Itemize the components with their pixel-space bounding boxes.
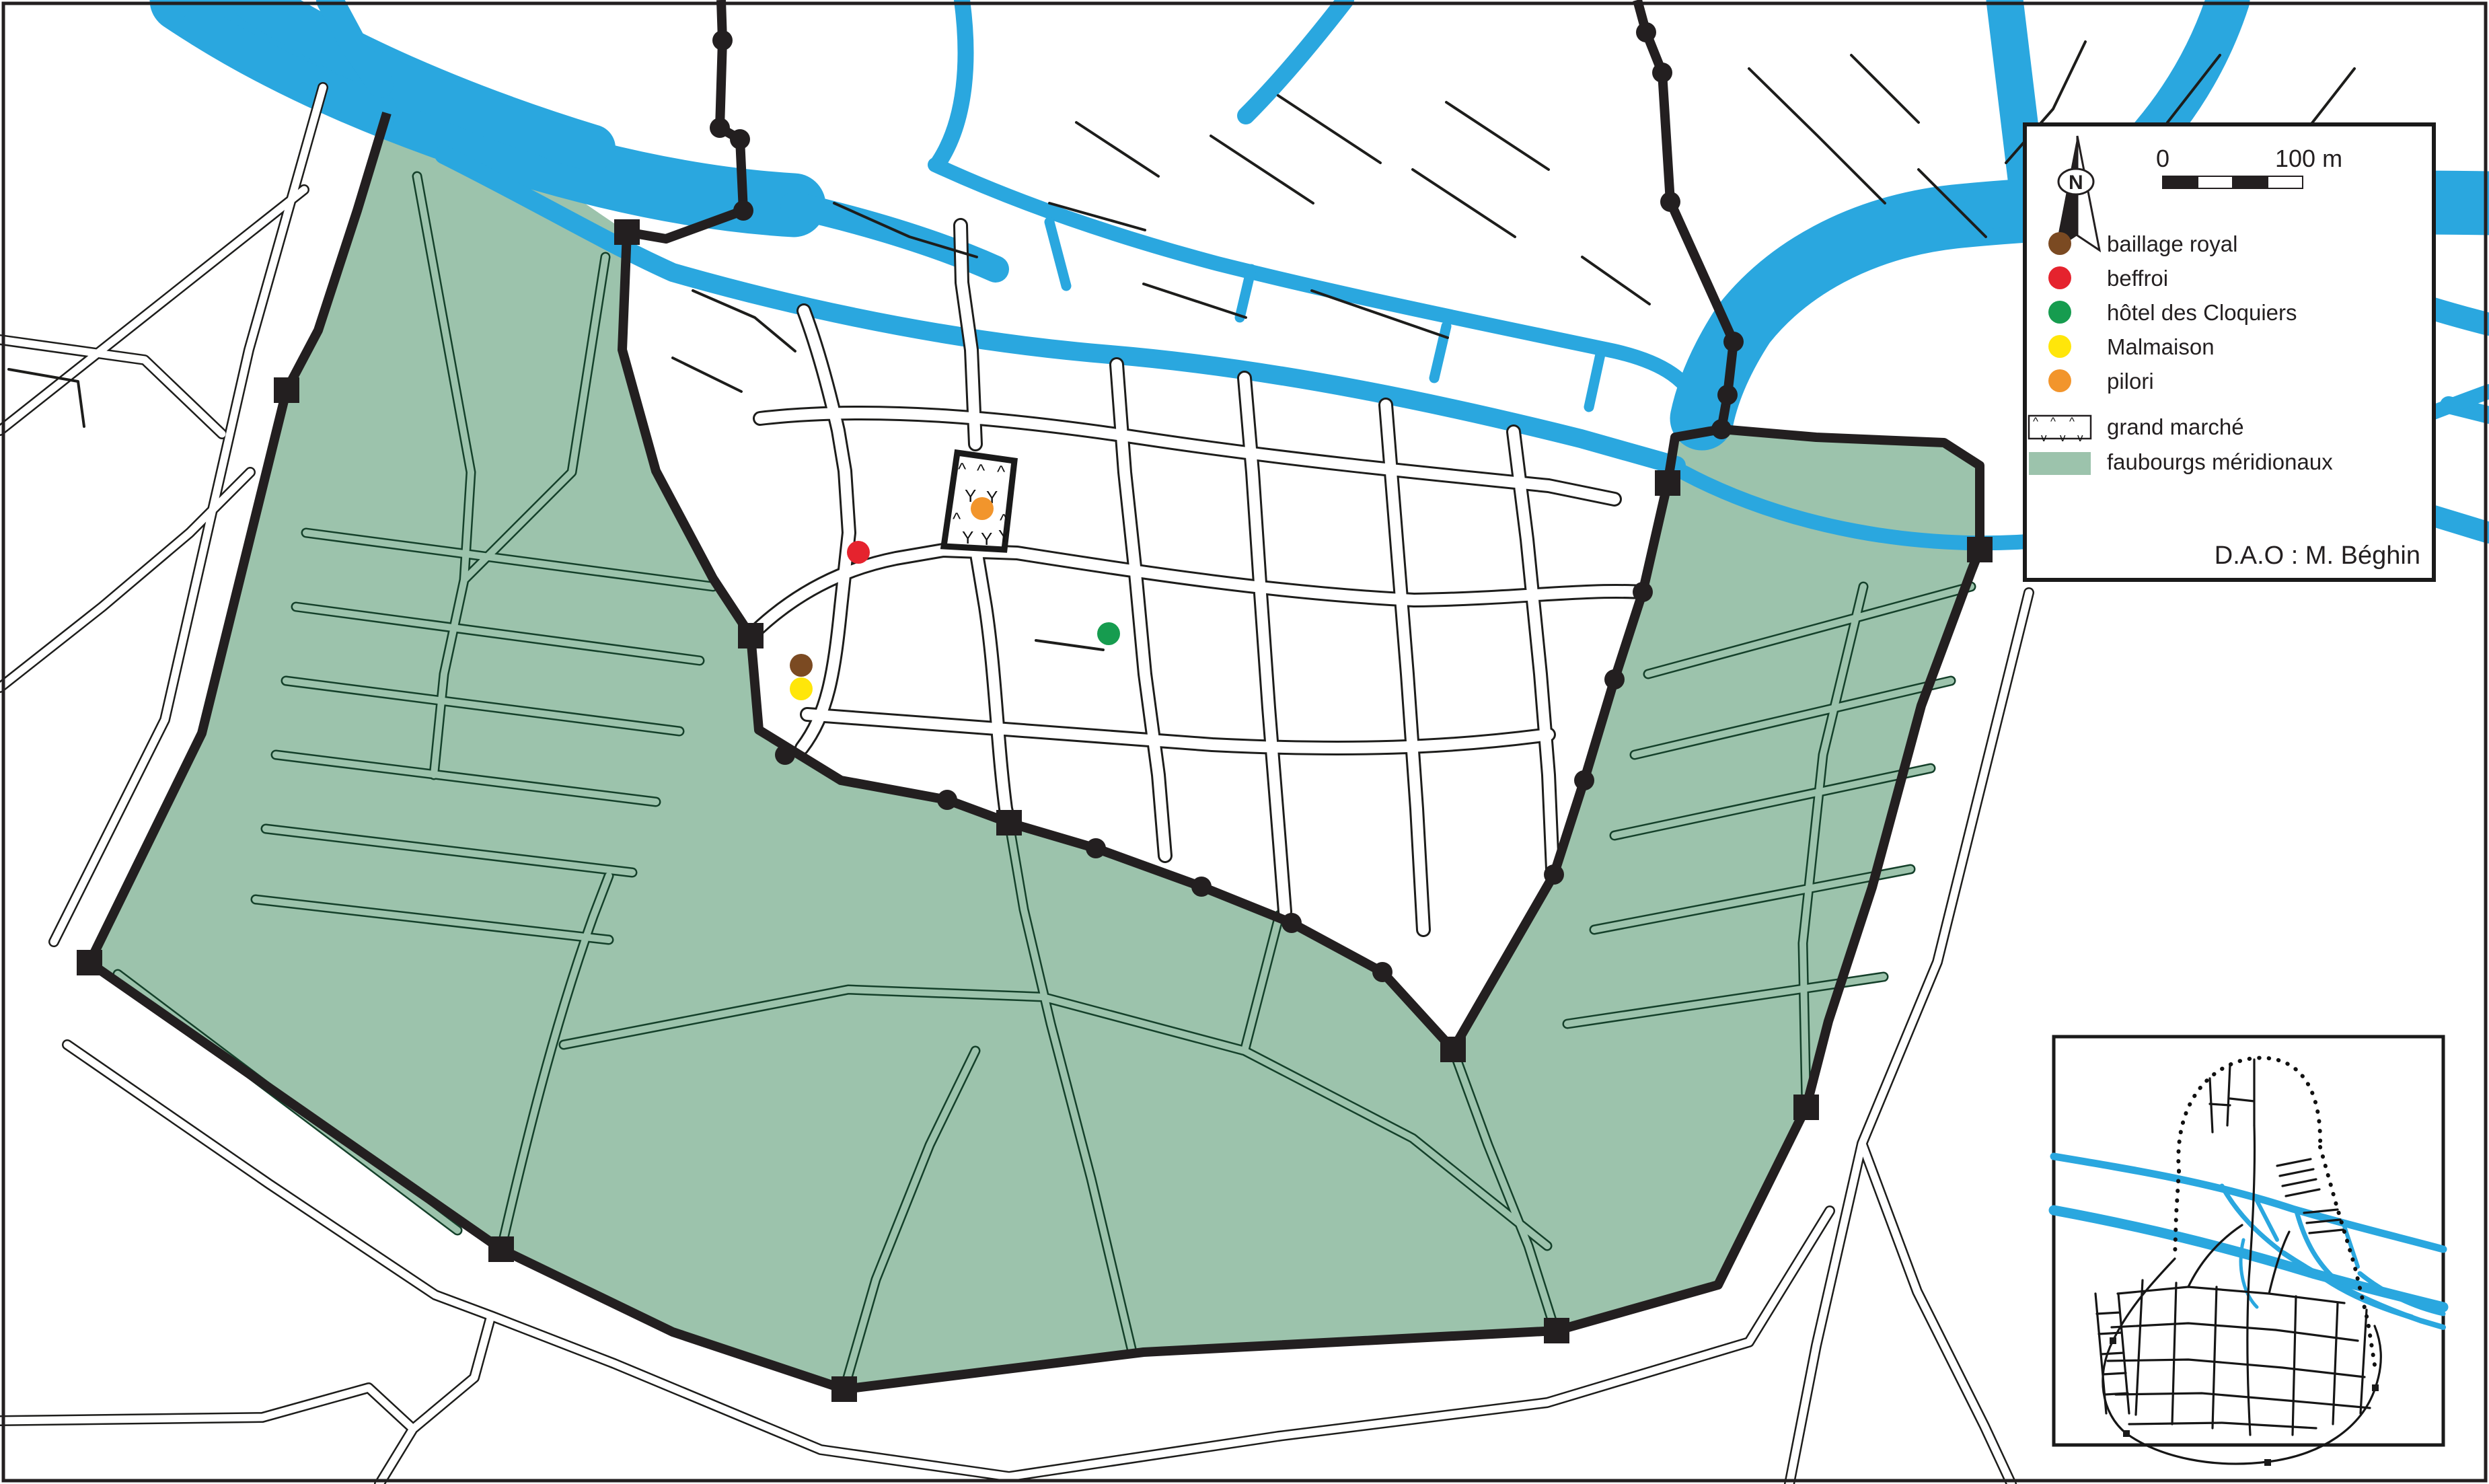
north-label: N xyxy=(2069,172,2083,194)
legend-item-faubourgs-meridionaux: faubourgs méridionaux xyxy=(2029,449,2333,475)
pilori-dot-icon xyxy=(2048,369,2071,392)
svg-text:^: ^ xyxy=(2033,415,2038,428)
hotel-des-cloquiers-dot-icon xyxy=(2048,301,2071,324)
legend-item-label: hôtel des Cloquiers xyxy=(2107,300,2297,325)
legend-item-label: faubourgs méridionaux xyxy=(2107,449,2333,474)
svg-text:^: ^ xyxy=(2050,415,2056,428)
legend-item-label: Malmaison xyxy=(2107,334,2215,359)
legend-item-label: baillage royal xyxy=(2107,231,2237,256)
scale-end-label: 100 m xyxy=(2275,145,2342,172)
svg-text:^: ^ xyxy=(997,461,1006,482)
baillage-royal-dot-icon xyxy=(2048,232,2071,255)
inset-map-box xyxy=(2054,1037,2443,1466)
svg-text:Y: Y xyxy=(981,529,992,549)
historic-city-map-page: ^^^ YY ^^ YYY N 0 100 m xyxy=(0,0,2489,1484)
marker-beffroi xyxy=(847,541,870,564)
marker-malmaison xyxy=(790,677,813,700)
marker-baillage-royal xyxy=(790,654,813,677)
legend-item-label: grand marché xyxy=(2107,414,2244,439)
svg-text:v: v xyxy=(2077,431,2083,444)
legend-item-label: beffroi xyxy=(2107,266,2168,291)
marker-pilori xyxy=(971,497,994,520)
scale-start-label: 0 xyxy=(2156,145,2169,172)
svg-text:Y: Y xyxy=(998,526,1010,546)
faubourgs-swatch-icon xyxy=(2029,452,2091,475)
svg-text:v: v xyxy=(2060,431,2066,444)
legend-item-beffroi: beffroi xyxy=(2048,266,2168,291)
svg-text:^: ^ xyxy=(2069,415,2075,428)
legend-item-label: pilori xyxy=(2107,369,2154,394)
svg-text:^: ^ xyxy=(977,460,986,480)
malmaison-dot-icon xyxy=(2048,335,2071,358)
svg-text:^: ^ xyxy=(953,509,961,529)
credit: D.A.O : M. Béghin xyxy=(2215,542,2420,570)
svg-text:Y: Y xyxy=(962,527,973,548)
legend-box: N 0 100 m baillage royal beffroi hôtel d… xyxy=(2025,124,2434,580)
marker-hotel-des-cloquiers xyxy=(1097,622,1120,645)
svg-text:^: ^ xyxy=(958,459,967,479)
svg-text:v: v xyxy=(2041,431,2047,444)
beffroi-dot-icon xyxy=(2048,266,2071,289)
city-map: ^^^ YY ^^ YYY N 0 100 m xyxy=(0,0,2489,1484)
